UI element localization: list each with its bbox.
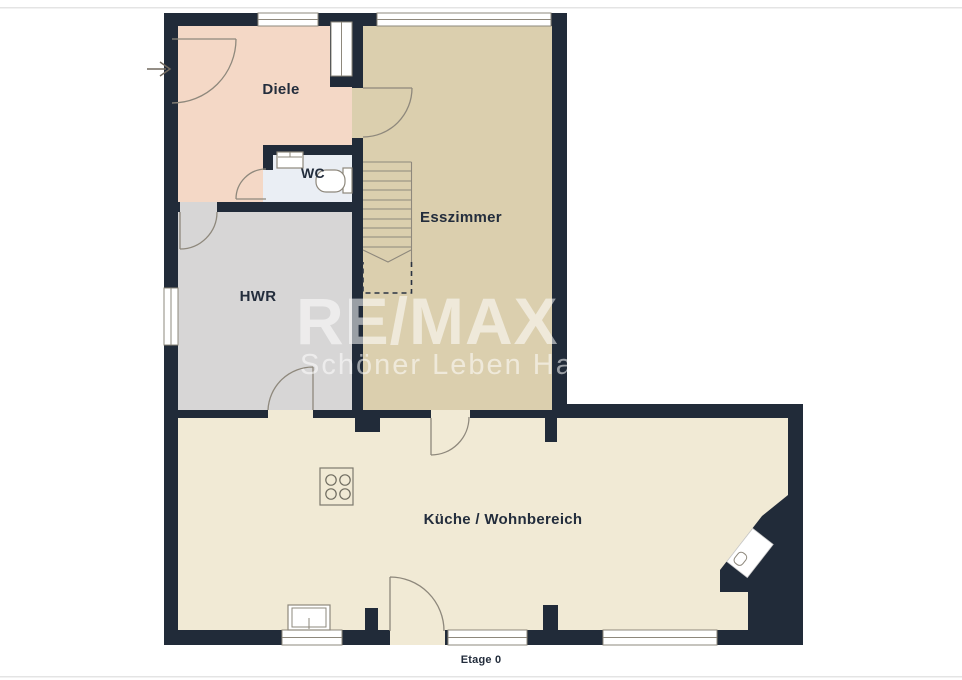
room-label-esszimmer: Esszimmer [411, 209, 511, 226]
wall-stub-a [355, 410, 380, 432]
window-kueche-bottom-1 [282, 630, 342, 645]
doorway-terrace [390, 630, 445, 645]
floor-level-label: Etage 0 [406, 654, 556, 666]
window-diele-top [258, 13, 318, 26]
room-label-diele: Diele [231, 81, 331, 98]
doorway-esszimmer-kueche [431, 410, 470, 418]
wall-stub-b [545, 418, 557, 442]
window-interior-diele [331, 22, 352, 76]
doorway-diele-esszimmer [352, 88, 363, 138]
wall-kitchen-ext-top [552, 404, 803, 418]
bottom-edge-line [0, 676, 962, 678]
wall-right [788, 404, 803, 645]
kitchen-sink-icon [288, 605, 330, 630]
top-edge-line [0, 7, 962, 9]
window-kueche-bottom-2 [448, 630, 527, 645]
wall-pillar-1 [365, 608, 378, 630]
doorway-hwr-kueche [268, 410, 313, 418]
watermark-brand: RE/MAX [296, 288, 559, 354]
doorway-diele-hwr [180, 202, 217, 212]
room-label-wc: WC [288, 165, 338, 181]
window-esszimmer-top [377, 13, 551, 26]
window-hwr-left [164, 288, 178, 345]
watermark-subtitle: Schöner Leben Ham [300, 351, 600, 380]
stove-icon [320, 468, 353, 505]
wall-wc-stub [263, 155, 273, 170]
wall-pillar-2 [543, 605, 558, 630]
window-kueche-bottom-3 [603, 630, 717, 645]
room-label-hwr: HWR [208, 288, 308, 305]
floorplan-canvas: Diele WC Esszimmer HWR Küche / Wohnberei… [0, 0, 962, 680]
room-label-kueche: Küche / Wohnbereich [403, 511, 603, 528]
